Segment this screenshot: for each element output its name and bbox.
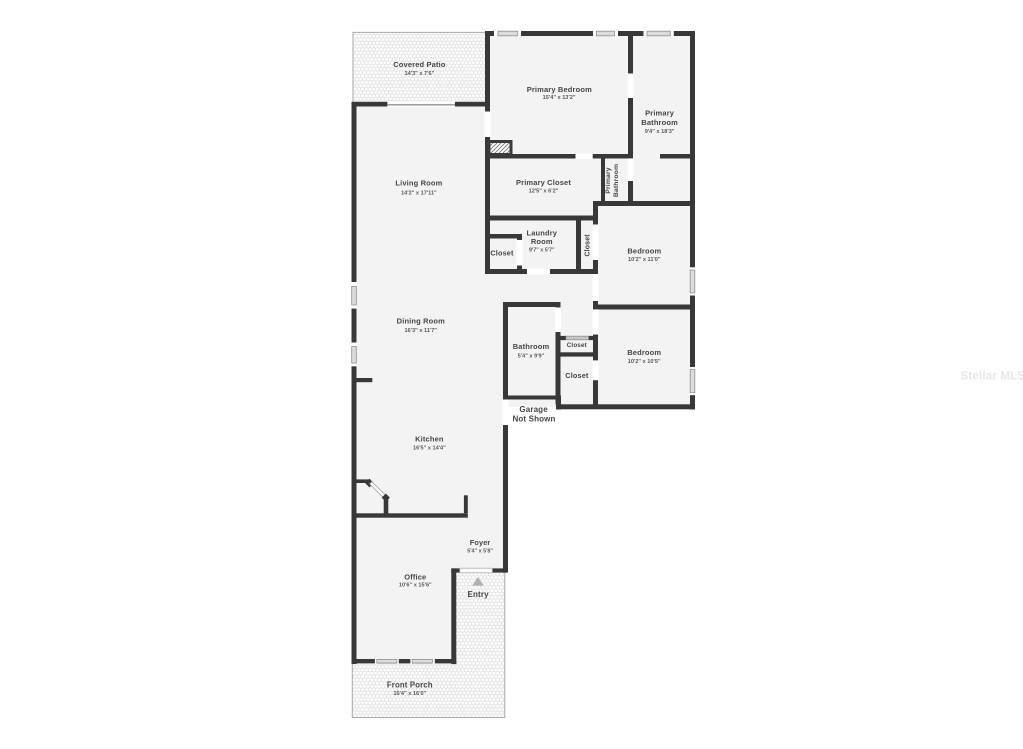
svg-text:10'2" x 10'5": 10'2" x 10'5" bbox=[628, 359, 661, 365]
svg-text:12'5" x 6'2": 12'5" x 6'2" bbox=[529, 189, 559, 195]
svg-text:15'4" x 13'2": 15'4" x 13'2" bbox=[543, 95, 576, 101]
svg-text:Front Porch: Front Porch bbox=[387, 680, 433, 689]
svg-text:Primary Closet: Primary Closet bbox=[516, 178, 571, 187]
svg-text:Bedroom: Bedroom bbox=[627, 247, 661, 256]
svg-text:16'3" x 11'7": 16'3" x 11'7" bbox=[405, 328, 438, 334]
svg-text:Closet: Closet bbox=[584, 234, 591, 257]
svg-text:5'4" x 5'8": 5'4" x 5'8" bbox=[467, 549, 493, 555]
svg-text:Office: Office bbox=[404, 573, 426, 582]
svg-text:Bathroom: Bathroom bbox=[513, 342, 550, 351]
svg-text:Primary Bedroom: Primary Bedroom bbox=[527, 85, 592, 94]
svg-text:Bathroom: Bathroom bbox=[641, 118, 678, 127]
svg-text:Garage: Garage bbox=[519, 405, 548, 414]
svg-text:Closet: Closet bbox=[567, 342, 588, 349]
svg-text:Closet: Closet bbox=[565, 371, 589, 380]
svg-text:Covered Patio: Covered Patio bbox=[393, 60, 446, 69]
svg-text:Bedroom: Bedroom bbox=[627, 348, 661, 357]
svg-text:9'4" x 18'3": 9'4" x 18'3" bbox=[645, 129, 675, 135]
svg-text:14'3" x 7'6": 14'3" x 7'6" bbox=[405, 71, 435, 77]
svg-text:Closet: Closet bbox=[490, 248, 514, 257]
svg-text:16'4" x 16'0": 16'4" x 16'0" bbox=[393, 691, 426, 697]
svg-text:PrimaryBathroom: PrimaryBathroom bbox=[605, 164, 620, 197]
svg-text:16'5" x 14'4": 16'5" x 14'4" bbox=[413, 445, 446, 451]
svg-text:Living Room: Living Room bbox=[395, 179, 442, 188]
svg-text:Foyer: Foyer bbox=[470, 538, 491, 547]
svg-text:9'7" x 5'7": 9'7" x 5'7" bbox=[529, 247, 555, 253]
svg-text:Dining Room: Dining Room bbox=[397, 317, 445, 326]
svg-text:Stellar MLS: Stellar MLS bbox=[961, 371, 1023, 383]
svg-text:Kitchen: Kitchen bbox=[415, 435, 444, 444]
svg-text:5'4" x 9'9": 5'4" x 9'9" bbox=[518, 353, 545, 359]
svg-text:14'2" x 17'11": 14'2" x 17'11" bbox=[401, 191, 437, 197]
svg-text:Not Shown: Not Shown bbox=[512, 415, 555, 424]
svg-text:Entry: Entry bbox=[467, 590, 489, 599]
svg-text:Room: Room bbox=[531, 237, 553, 246]
svg-text:Primary: Primary bbox=[645, 109, 675, 118]
svg-text:10'2" x 11'0": 10'2" x 11'0" bbox=[628, 257, 661, 263]
svg-text:10'6" x 15'6": 10'6" x 15'6" bbox=[399, 583, 432, 589]
